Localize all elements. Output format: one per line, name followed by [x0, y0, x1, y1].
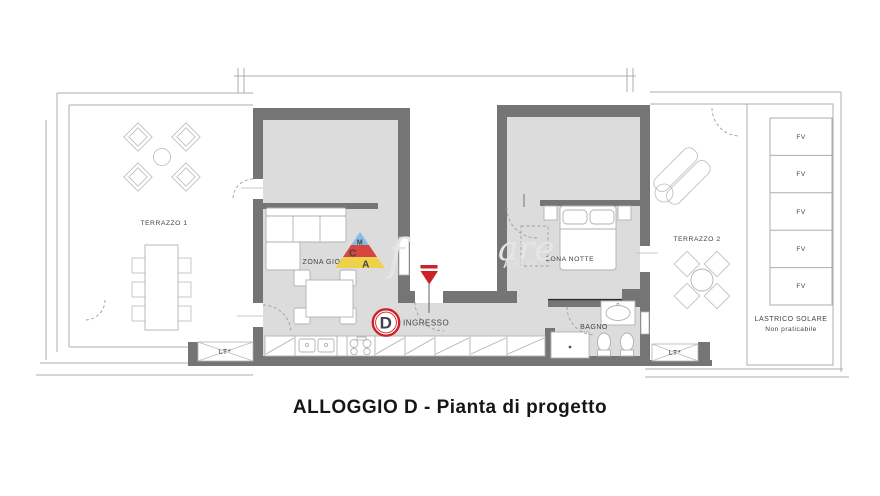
- logo-letter-a: A: [362, 260, 370, 271]
- terrazzo2-furniture: [651, 145, 730, 309]
- terrace-1-outline: [36, 93, 253, 375]
- kitchen-counter: [265, 336, 545, 356]
- fv-label: FV: [796, 209, 805, 216]
- entrance-marker-bar: [421, 265, 438, 269]
- watermark-caps: ANO: [503, 257, 539, 271]
- logo-letter-m: M: [357, 240, 363, 247]
- fv-label: FV: [796, 246, 805, 253]
- fv-label: FV: [796, 283, 805, 290]
- floor-plan: FV FV FV FV FV LT* LT* TERRAZZO 1 ZONA G…: [0, 0, 880, 496]
- round-table-set-icon: [674, 251, 729, 308]
- toilet-icon: [598, 333, 611, 356]
- top-boundary-lines: [234, 68, 636, 93]
- outdoor-dining-icon: [132, 245, 191, 330]
- fv-label: FV: [796, 171, 805, 178]
- label-bagno: BAGNO: [580, 324, 608, 331]
- label-terrazzo2: TERRAZZO 2: [673, 236, 720, 243]
- floor-plan-page: FV FV FV FV FV LT* LT* TERRAZZO 1 ZONA G…: [0, 0, 880, 496]
- sun-lounger-icon: [651, 145, 713, 207]
- washbasin-icon: [601, 301, 635, 325]
- lt-box-left: LT*: [198, 342, 253, 361]
- shower-icon: [551, 332, 589, 358]
- plan-caption: ALLOGGIO D - Pianta di progetto: [293, 397, 607, 418]
- label-lastrico: LASTRICO SOLARE: [755, 316, 828, 323]
- solar-panel-stack: FV FV FV FV FV: [770, 118, 832, 305]
- terrace-2-and-roof-outline: [645, 92, 849, 377]
- lt-right-label: LT*: [669, 348, 682, 357]
- label-ingresso: INGRESSO: [403, 319, 449, 328]
- logo-letter-c: C: [349, 249, 357, 260]
- lt-left-label: LT*: [219, 347, 232, 356]
- unit-letter: D: [380, 314, 393, 333]
- fv-label: FV: [796, 134, 805, 141]
- lt-box-right: LT*: [652, 344, 698, 361]
- label-lastrico-note: Non praticabile: [765, 326, 816, 333]
- lounge-set-icon: [124, 123, 200, 191]
- bidet-icon: [621, 333, 634, 356]
- label-terrazzo1: TERRAZZO 1: [140, 220, 187, 227]
- entrance-marker-arrow-icon: [421, 271, 439, 285]
